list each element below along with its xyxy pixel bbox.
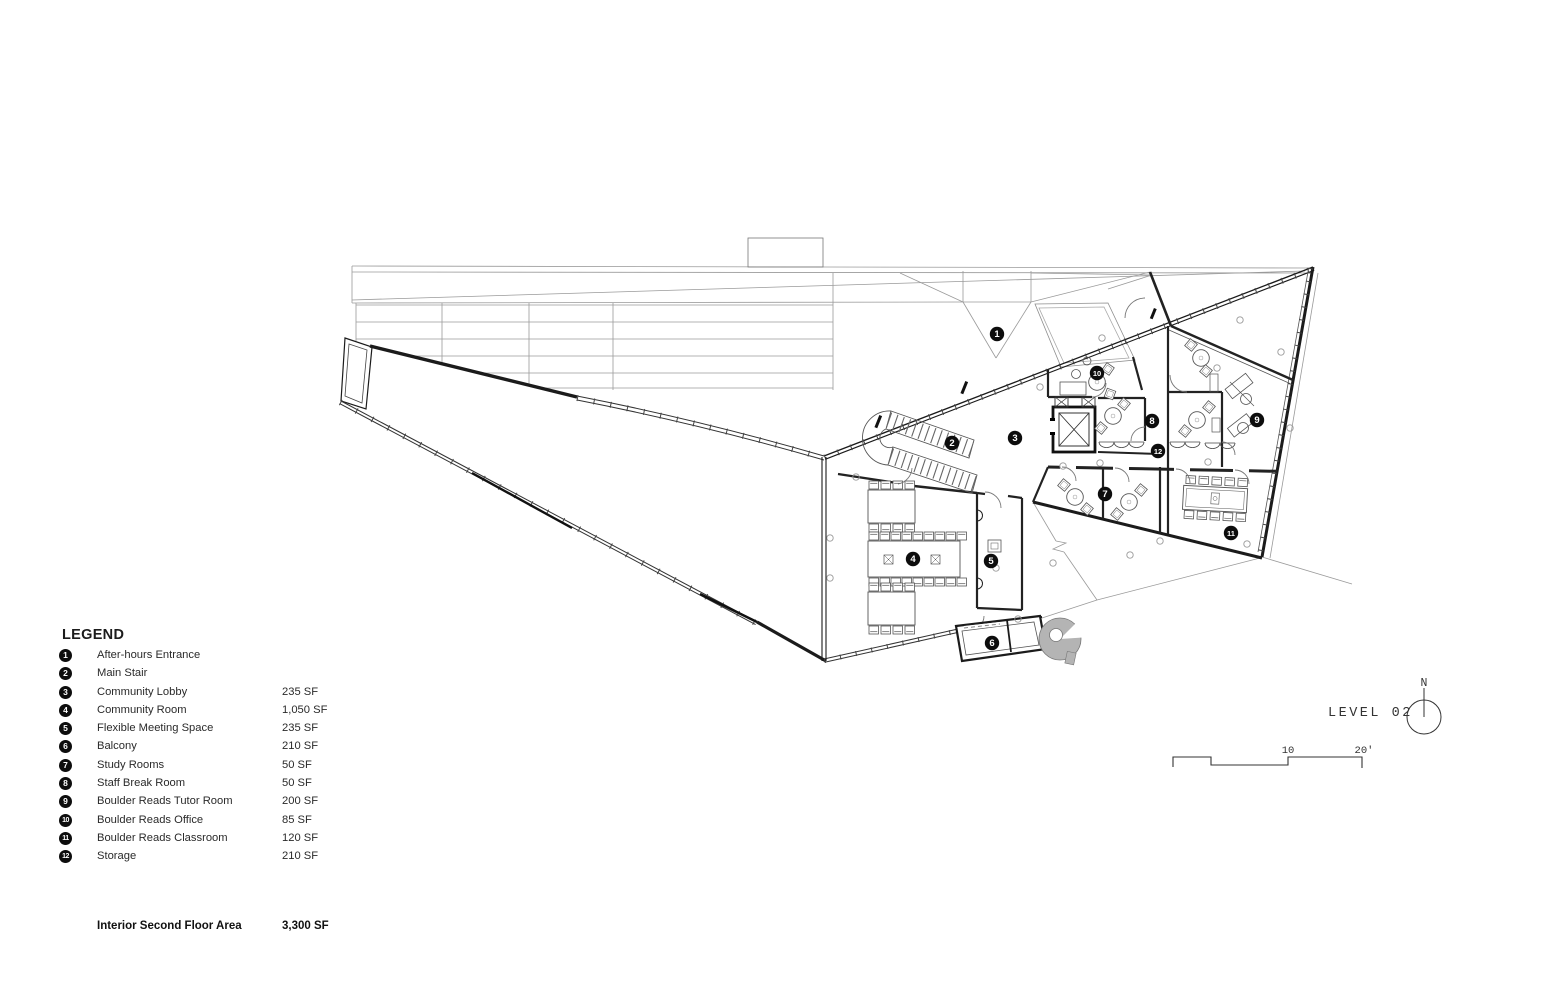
legend-item-area: 85 SF [282, 814, 312, 826]
plan-marker-number: 12 [1154, 447, 1162, 456]
legend-item: 1After-hours Entrance [59, 647, 389, 665]
legend-item-label: Boulder Reads Classroom [97, 832, 228, 844]
legend-item-area: 210 SF [282, 740, 318, 752]
legend-item-area: 235 SF [282, 686, 318, 698]
legend-item: 9Boulder Reads Tutor Room200 SF [59, 793, 389, 811]
level-title-text: LEVEL 02 [1328, 706, 1413, 721]
legend-item: 12Storage210 SF [59, 848, 389, 866]
legend-item-label: Boulder Reads Office [97, 814, 203, 826]
plan-marker-number: 1 [994, 329, 1000, 340]
plan-marker-number: 3 [1012, 433, 1017, 444]
legend-item: 3Community Lobby235 SF [59, 684, 389, 702]
scale-bar: 10 20' [1173, 745, 1373, 768]
level-title: LEVEL 02 [1328, 706, 1413, 721]
scale-mid-label: 10 [1282, 745, 1295, 757]
keynote-badge: 4 [59, 704, 72, 717]
balcony [956, 616, 1090, 665]
keynote-badge: 9 [59, 795, 72, 808]
legend-item: 10Boulder Reads Office85 SF [59, 812, 389, 830]
keynote-badge: 6 [59, 740, 72, 753]
shaft-vents [1055, 397, 1095, 407]
keynote-badge: 10 [59, 814, 72, 827]
tutor-desks [1210, 373, 1254, 437]
legend-item-area: 1,050 SF [282, 704, 327, 716]
keynote-badge: 7 [59, 759, 72, 772]
legend-item-label: Main Stair [97, 667, 147, 679]
legend-item-label: Staff Break Room [97, 777, 185, 789]
legend-item-label: Storage [97, 850, 136, 862]
community-table-1 [868, 481, 915, 532]
elevator [1050, 397, 1095, 452]
plan-marker-number: 7 [1102, 489, 1107, 500]
plan-marker-number: 9 [1254, 415, 1259, 426]
legend-item: 4Community Room1,050 SF [59, 702, 389, 720]
legend-item-area: 50 SF [282, 777, 312, 789]
classroom-table [1182, 475, 1248, 521]
plan-marker-number: 5 [988, 556, 994, 567]
plan-marker-number: 6 [989, 638, 994, 649]
legend-item-label: Flexible Meeting Space [97, 722, 213, 734]
legend-item-label: Community Lobby [97, 686, 187, 698]
legend-item-label: Boulder Reads Tutor Room [97, 795, 233, 807]
keynote-badge: 5 [59, 722, 72, 735]
keynote-badge: 1 [59, 649, 72, 662]
legend-item: 7Study Rooms50 SF [59, 757, 389, 775]
legend-item-area: 210 SF [282, 850, 318, 862]
legend-item-area: 235 SF [282, 722, 318, 734]
legend-item: 5Flexible Meeting Space235 SF [59, 720, 389, 738]
legend-item-label: Study Rooms [97, 759, 164, 771]
legend: LEGEND 1After-hours Entrance2Main Stair3… [59, 627, 389, 972]
scale-end-label: 20' [1355, 745, 1374, 757]
legend-total-area: 3,300 SF [282, 920, 329, 932]
legend-item-area: 50 SF [282, 759, 312, 771]
drawing-sheet: 123456789101112 LEVEL 02 N 10 20' LEGEND… [0, 0, 1545, 1000]
keynote-badge: 8 [59, 777, 72, 790]
legend-item: 2Main Stair [59, 665, 389, 683]
keynote-badge: 2 [59, 667, 72, 680]
spiral-stair [1039, 617, 1090, 665]
legend-item-area: 200 SF [282, 795, 318, 807]
plan-marker-number: 4 [910, 554, 916, 565]
legend-title: LEGEND [62, 627, 124, 643]
keynote-badge: 11 [59, 832, 72, 845]
plan-marker-number: 11 [1227, 529, 1235, 538]
plan-marker-number: 8 [1149, 416, 1154, 427]
roof-outline-lines [352, 238, 1352, 618]
plan-marker-number: 2 [949, 438, 954, 449]
north-arrow: N [1407, 677, 1441, 734]
legend-item: 11Boulder Reads Classroom120 SF [59, 830, 389, 848]
legend-item-label: Community Room [97, 704, 187, 716]
community-table-3 [868, 583, 915, 634]
legend-item: 8Staff Break Room50 SF [59, 775, 389, 793]
north-label: N [1421, 677, 1428, 690]
legend-item-area: 120 SF [282, 832, 318, 844]
legend-item: 6Balcony210 SF [59, 738, 389, 756]
plan-marker-number: 10 [1093, 369, 1101, 378]
legend-rows: 1After-hours Entrance2Main Stair3Communi… [59, 647, 389, 867]
legend-total-label: Interior Second Floor Area [97, 920, 242, 932]
keynote-badge: 12 [59, 850, 72, 863]
keynote-badge: 3 [59, 686, 72, 699]
legend-item-label: After-hours Entrance [97, 649, 200, 661]
legend-item-label: Balcony [97, 740, 137, 752]
